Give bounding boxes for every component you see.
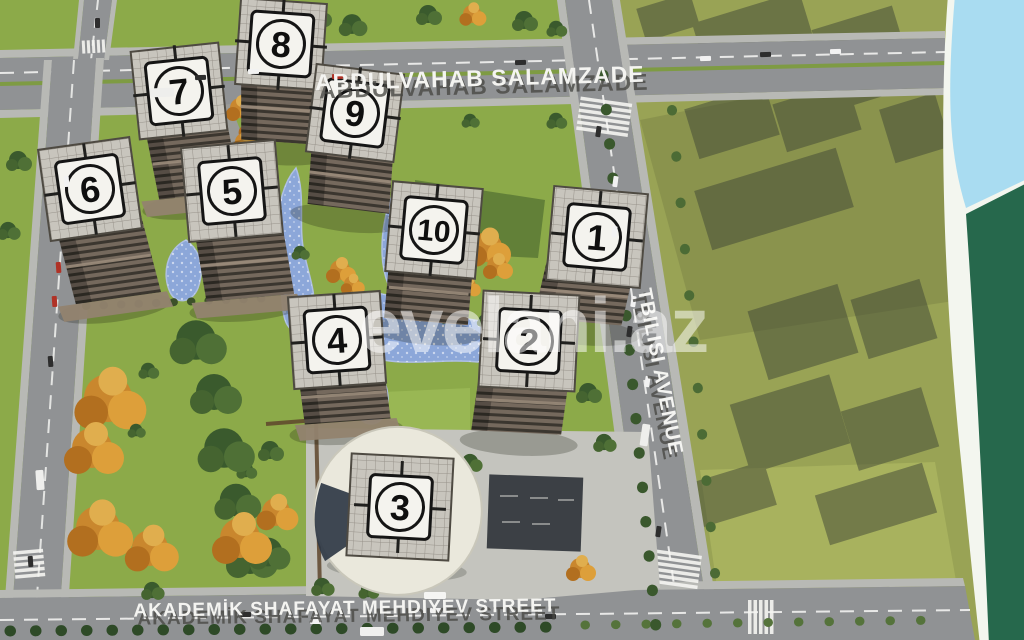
building-3-number: 3 <box>389 487 411 529</box>
masterplan-render: 8 7 9 <box>0 0 1024 640</box>
building-8-number: 8 <box>270 23 293 65</box>
car <box>28 556 34 567</box>
car <box>56 262 62 273</box>
bus <box>35 470 44 491</box>
car <box>52 296 58 307</box>
car <box>195 75 206 80</box>
building-4-number: 4 <box>326 319 349 361</box>
bus <box>150 88 174 98</box>
building-5-number: 5 <box>220 170 244 213</box>
car <box>830 49 841 54</box>
bus <box>360 627 384 636</box>
car <box>95 18 100 28</box>
watermark: evelani.az <box>359 281 708 369</box>
parking-lot <box>487 474 584 551</box>
sky-accent <box>950 0 1024 208</box>
car <box>64 176 70 187</box>
car <box>48 356 54 367</box>
building-1-number: 1 <box>585 216 609 259</box>
site-plan-map: 8 7 9 <box>0 0 1024 640</box>
car <box>248 69 259 74</box>
building-10-number: 10 <box>416 214 452 250</box>
car <box>760 52 771 57</box>
car <box>700 56 711 61</box>
